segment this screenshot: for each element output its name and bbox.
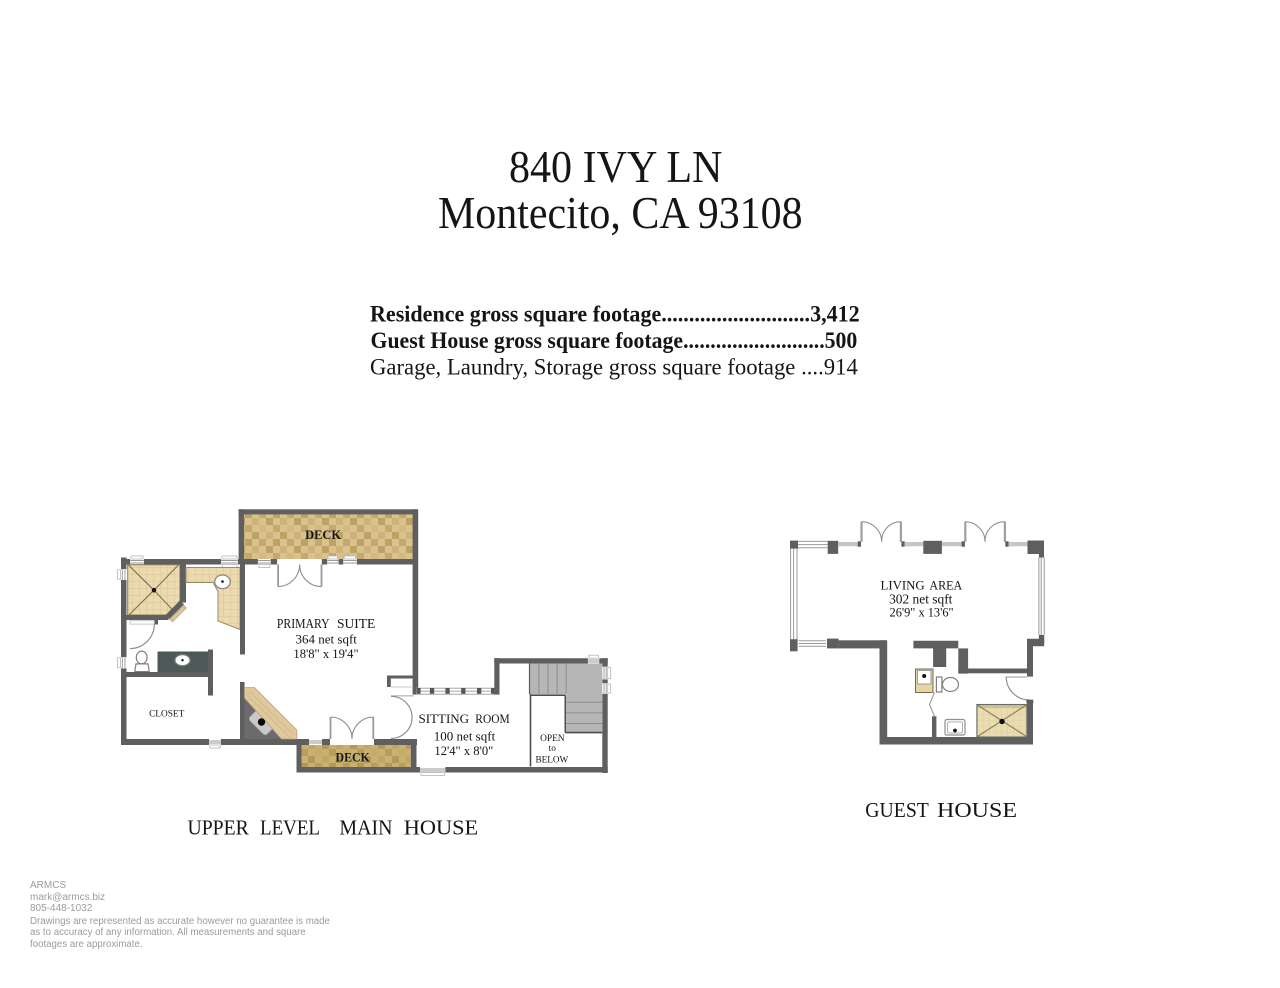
svg-text:Guest House gross square foota: Guest House gross square footage........… (371, 327, 858, 353)
svg-text:MAIN: MAIN (339, 816, 392, 840)
svg-text:LIVING: LIVING (881, 579, 925, 593)
svg-text:to: to (549, 744, 557, 754)
svg-text:DECK: DECK (305, 528, 341, 542)
svg-text:100 net sqft: 100 net sqft (434, 729, 496, 744)
svg-text:UPPER: UPPER (188, 817, 249, 840)
svg-text:26'9" x 13'6": 26'9" x 13'6" (890, 605, 954, 619)
svg-text:SUITE: SUITE (337, 616, 375, 631)
svg-text:Montecito, CA 93108: Montecito, CA 93108 (438, 188, 803, 238)
svg-text:12'4" x 8'0": 12'4" x 8'0" (434, 744, 493, 758)
svg-text:ROOM: ROOM (475, 712, 509, 727)
svg-text:AREA: AREA (929, 578, 962, 592)
svg-text:840 IVY LN: 840 IVY LN (509, 143, 722, 193)
svg-text:18'8" x 19'4": 18'8" x 19'4" (293, 647, 358, 661)
svg-text:Residence gross square footage: Residence gross square footage..........… (370, 301, 860, 327)
svg-text:PRIMARY: PRIMARY (277, 616, 330, 631)
svg-text:364 net sqft: 364 net sqft (296, 631, 358, 646)
svg-text:BELOW: BELOW (536, 755, 569, 765)
svg-text:CLOSET: CLOSET (149, 708, 184, 719)
svg-text:HOUSE: HOUSE (937, 798, 1017, 821)
svg-text:OPEN: OPEN (540, 734, 565, 744)
svg-text:SITTING: SITTING (419, 711, 470, 726)
svg-text:302 net sqft: 302 net sqft (889, 592, 953, 607)
svg-text:LEVEL: LEVEL (260, 816, 320, 839)
svg-text:HOUSE: HOUSE (404, 815, 478, 840)
svg-text:Garage, Laundry, Storage gross: Garage, Laundry, Storage gross square fo… (370, 353, 858, 379)
svg-text:DECK: DECK (336, 750, 371, 765)
svg-text:GUEST: GUEST (865, 799, 929, 822)
